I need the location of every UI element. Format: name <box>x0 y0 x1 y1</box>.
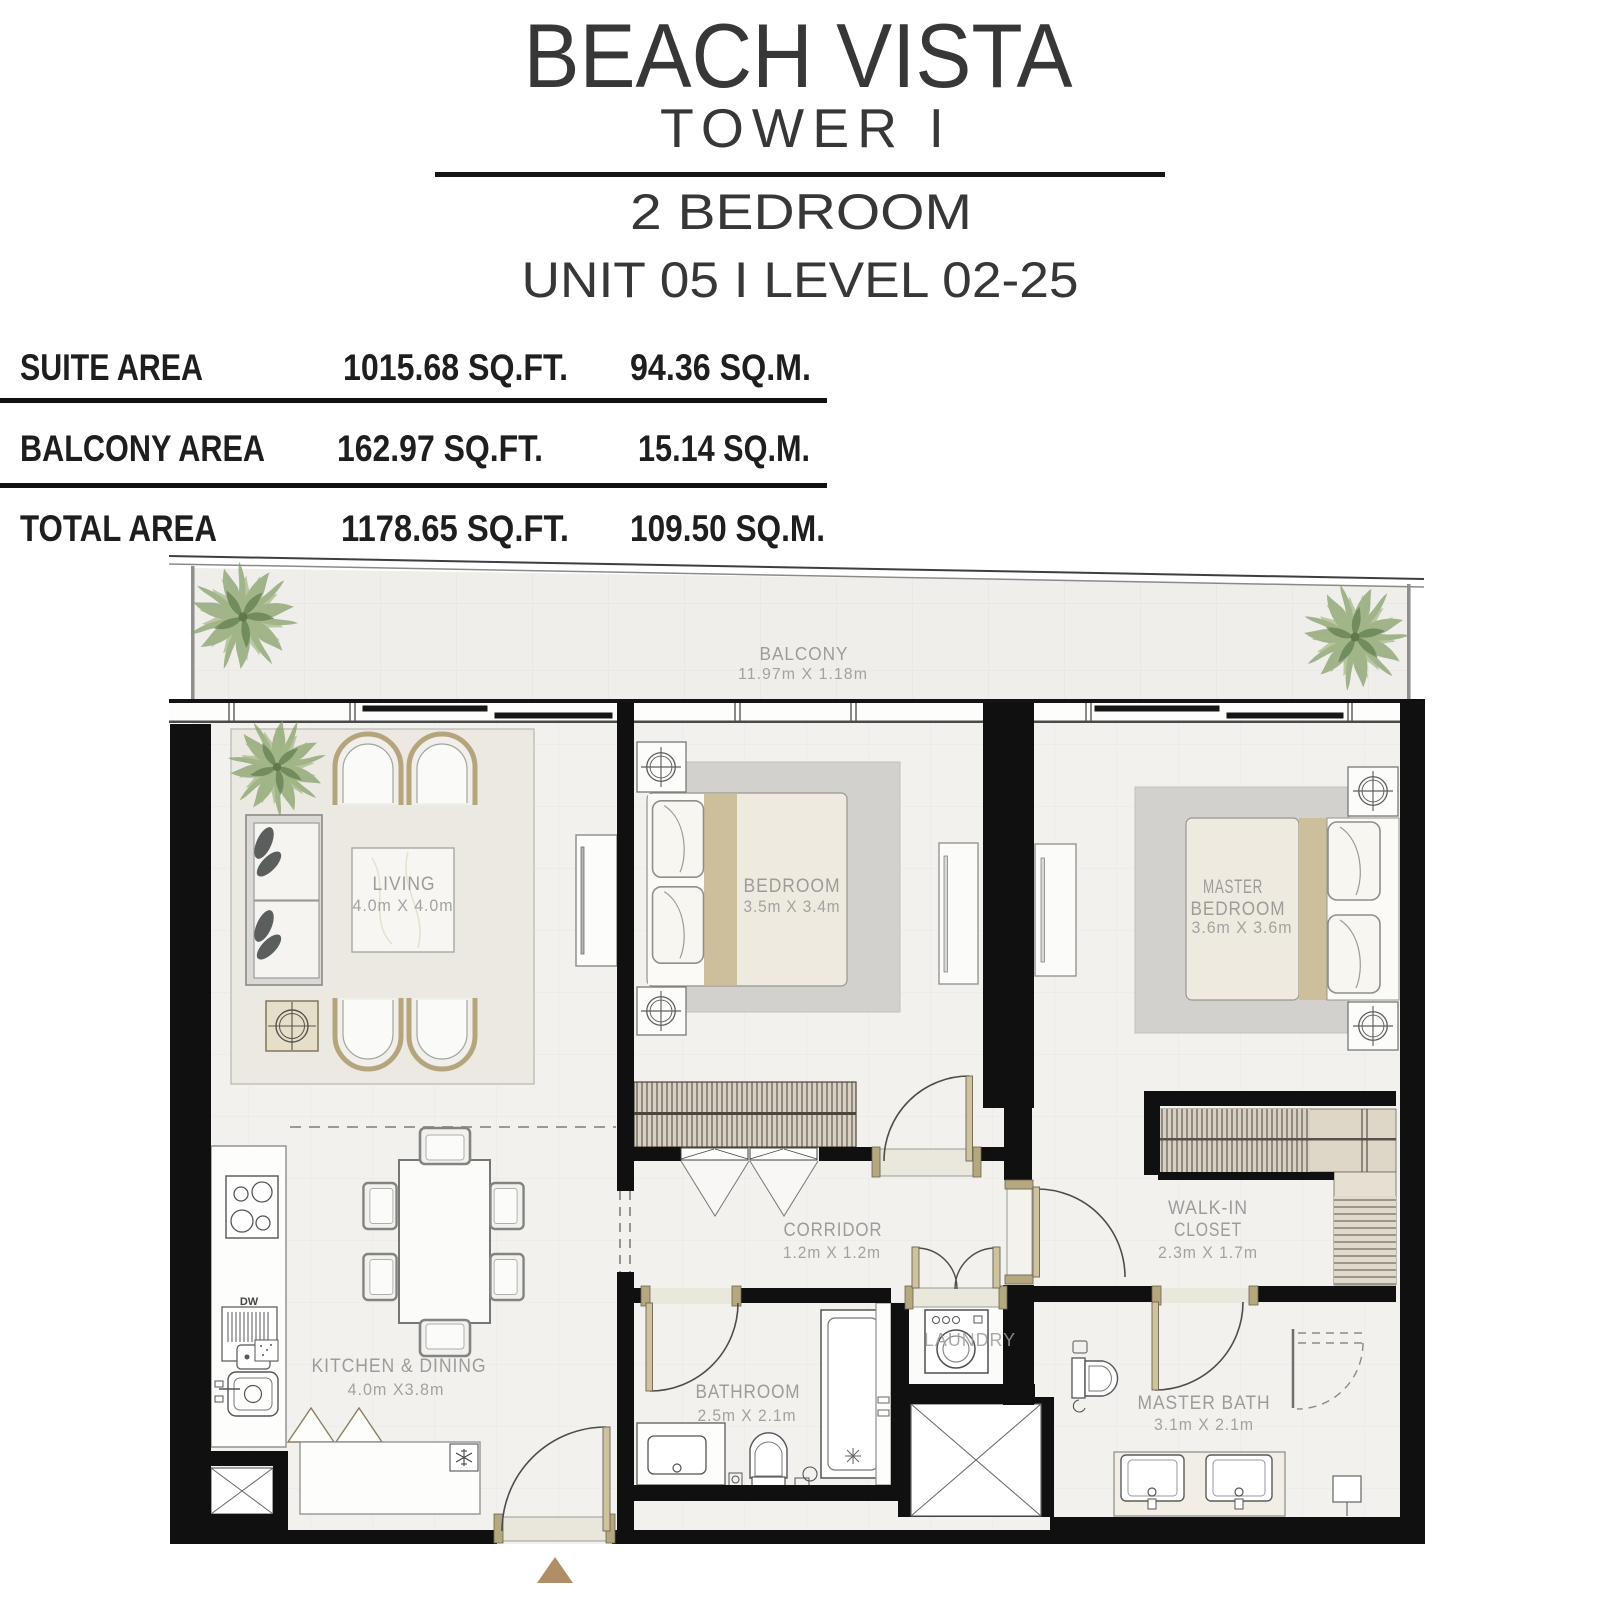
svg-text:162.97 SQ.FT.: 162.97 SQ.FT. <box>337 428 543 469</box>
svg-text:2.5m X 2.1m: 2.5m X 2.1m <box>698 1407 797 1425</box>
svg-text:MASTER BATH: MASTER BATH <box>1138 1393 1271 1414</box>
svg-text:4.0m X 4.0m: 4.0m X 4.0m <box>353 897 454 915</box>
svg-text:1178.65 SQ.FT.: 1178.65 SQ.FT. <box>341 508 569 549</box>
svg-text:UNIT 05 I LEVEL 02-25: UNIT 05 I LEVEL 02-25 <box>522 252 1079 308</box>
svg-text:2.3m X 1.7m: 2.3m X 1.7m <box>1158 1244 1258 1262</box>
svg-text:11.97m X 1.18m: 11.97m X 1.18m <box>738 666 868 683</box>
svg-text:BALCONY AREA: BALCONY AREA <box>20 428 265 469</box>
svg-text:109.50 SQ.M.: 109.50 SQ.M. <box>630 508 825 549</box>
svg-text:MASTER: MASTER <box>1203 877 1263 898</box>
svg-text:3.6m X 3.6m: 3.6m X 3.6m <box>1192 919 1293 937</box>
svg-text:1.2m X 1.2m: 1.2m X 1.2m <box>783 1244 881 1262</box>
svg-text:94.36 SQ.M.: 94.36 SQ.M. <box>630 347 811 388</box>
svg-text:BEDROOM: BEDROOM <box>744 876 841 897</box>
svg-text:WALK-IN: WALK-IN <box>1168 1198 1248 1219</box>
svg-text:KITCHEN & DINING: KITCHEN & DINING <box>312 1356 487 1377</box>
svg-text:2 BEDROOM: 2 BEDROOM <box>630 184 972 240</box>
svg-text:1015.68 SQ.FT.: 1015.68 SQ.FT. <box>343 347 568 388</box>
svg-text:CLOSET: CLOSET <box>1174 1220 1242 1241</box>
svg-text:BEACH VISTA: BEACH VISTA <box>524 6 1073 107</box>
svg-text:DW: DW <box>240 1296 259 1308</box>
svg-text:BALCONY: BALCONY <box>760 644 849 664</box>
svg-text:TOWER I: TOWER I <box>660 97 952 159</box>
svg-text:4.0m X3.8m: 4.0m X3.8m <box>348 1381 445 1399</box>
svg-text:TOTAL AREA: TOTAL AREA <box>20 508 217 549</box>
svg-text:LIVING: LIVING <box>373 874 436 895</box>
svg-text:BEDROOM: BEDROOM <box>1191 899 1286 920</box>
svg-text:SUITE AREA: SUITE AREA <box>20 347 203 388</box>
svg-text:LAUNDRY: LAUNDRY <box>924 1330 1016 1350</box>
svg-text:CORRIDOR: CORRIDOR <box>784 1220 883 1241</box>
svg-text:BATHROOM: BATHROOM <box>696 1382 801 1403</box>
svg-text:3.5m X 3.4m: 3.5m X 3.4m <box>744 898 841 916</box>
svg-text:15.14 SQ.M.: 15.14 SQ.M. <box>638 428 810 469</box>
svg-text:3.1m X 2.1m: 3.1m X 2.1m <box>1154 1416 1254 1434</box>
